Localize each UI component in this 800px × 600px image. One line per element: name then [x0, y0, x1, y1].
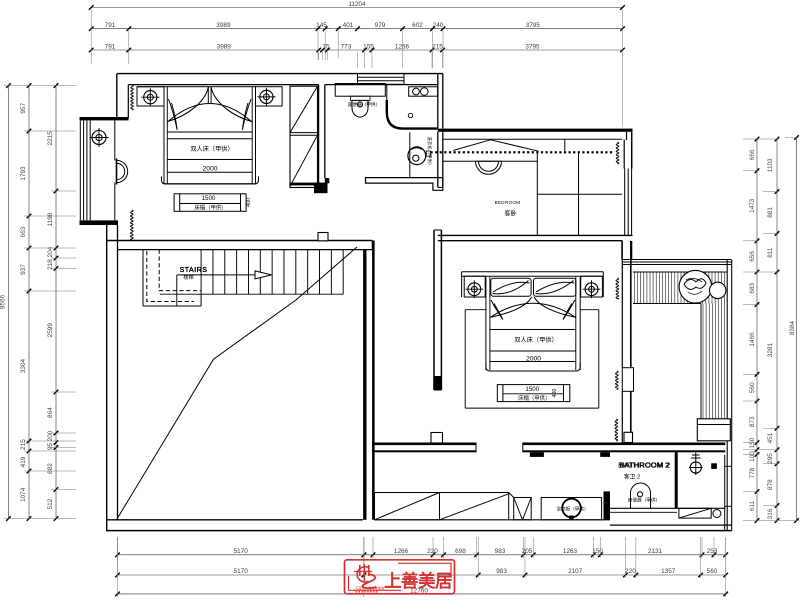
svg-text:3795: 3795 — [526, 22, 541, 29]
svg-text:床榻（甲供）: 床榻（甲供） — [194, 203, 226, 211]
svg-text:1500: 1500 — [525, 386, 539, 393]
svg-text:155: 155 — [363, 43, 374, 50]
svg-text:3281: 3281 — [767, 343, 774, 358]
svg-text:1266: 1266 — [394, 548, 409, 555]
svg-text:1466: 1466 — [749, 332, 756, 347]
svg-text:791: 791 — [105, 43, 116, 50]
svg-text:1793: 1793 — [20, 166, 27, 181]
svg-text:11204: 11204 — [348, 1, 366, 8]
svg-text:3795: 3795 — [525, 43, 540, 50]
svg-text:1198: 1198 — [47, 212, 54, 226]
svg-text:683: 683 — [749, 282, 756, 293]
svg-text:150: 150 — [592, 548, 603, 555]
svg-text:881: 881 — [767, 207, 774, 218]
svg-text:882: 882 — [47, 463, 54, 474]
svg-text:878: 878 — [767, 479, 774, 490]
svg-text:75: 75 — [322, 43, 330, 50]
svg-text:602: 602 — [412, 22, 423, 29]
svg-text:295: 295 — [767, 453, 774, 464]
svg-text:95: 95 — [47, 443, 54, 451]
svg-text:双人床（甲供）: 双人床（甲供） — [190, 145, 233, 153]
svg-text:698: 698 — [455, 548, 466, 555]
svg-text:2215: 2215 — [47, 131, 54, 146]
svg-text:2599: 2599 — [47, 323, 54, 338]
svg-text:215: 215 — [20, 439, 27, 450]
svg-text:401: 401 — [343, 22, 354, 29]
svg-text:8384: 8384 — [789, 320, 796, 335]
svg-text:5170: 5170 — [234, 568, 249, 575]
svg-text:983: 983 — [495, 548, 506, 555]
svg-text:400: 400 — [552, 389, 558, 398]
svg-text:937: 937 — [20, 264, 27, 275]
svg-text:811: 811 — [767, 247, 774, 258]
svg-text:316: 316 — [767, 508, 774, 519]
svg-text:873: 873 — [749, 416, 756, 427]
svg-text:浴室柜（甲供）: 浴室柜（甲供） — [556, 505, 588, 512]
svg-text:611: 611 — [749, 501, 756, 512]
svg-text:石家庄上善美居装饰: 石家庄上善美居装饰 — [356, 586, 385, 591]
svg-text:1473: 1473 — [749, 198, 756, 213]
svg-text:983: 983 — [496, 568, 507, 575]
svg-text:座便器（甲供）: 座便器（甲供） — [348, 101, 380, 108]
svg-text:778: 778 — [749, 467, 756, 478]
svg-text:240: 240 — [433, 22, 444, 29]
svg-text:200: 200 — [47, 430, 54, 441]
svg-text:957: 957 — [20, 103, 27, 114]
svg-text:上善美居: 上善美居 — [384, 571, 452, 591]
svg-text:145: 145 — [316, 22, 327, 29]
svg-text:1103: 1103 — [767, 158, 774, 172]
svg-text:220: 220 — [625, 568, 636, 575]
svg-text:9566: 9566 — [0, 294, 6, 309]
svg-text:双人床（甲供）: 双人床（甲供） — [514, 336, 557, 344]
svg-text:3989: 3989 — [216, 22, 231, 29]
svg-text:5170: 5170 — [234, 548, 249, 555]
svg-text:560: 560 — [707, 568, 718, 575]
svg-text:1263: 1263 — [563, 548, 578, 555]
svg-text:STAIRS: STAIRS — [180, 267, 208, 274]
svg-text:864: 864 — [47, 407, 54, 418]
svg-text:3304: 3304 — [20, 358, 27, 373]
svg-text:1500: 1500 — [202, 195, 216, 202]
svg-text:2107: 2107 — [568, 568, 583, 575]
svg-text:床榻（甲供）: 床榻（甲供） — [518, 394, 550, 402]
svg-text:666: 666 — [749, 149, 756, 160]
svg-text:座便器（甲供）: 座便器（甲供） — [628, 496, 660, 503]
svg-text:979: 979 — [375, 22, 386, 29]
svg-text:791: 791 — [105, 22, 116, 29]
svg-text:656: 656 — [749, 251, 756, 262]
svg-text:客卫 2: 客卫 2 — [624, 473, 640, 481]
svg-text:客卧: 客卧 — [504, 210, 516, 218]
svg-text:220: 220 — [427, 548, 438, 555]
svg-text:400: 400 — [246, 198, 252, 207]
svg-text:1357: 1357 — [661, 568, 676, 575]
svg-text:1074: 1074 — [20, 487, 27, 502]
svg-text:2131: 2131 — [648, 548, 663, 555]
svg-text:BATHROOM 2: BATHROOM 2 — [620, 461, 670, 470]
svg-text:663: 663 — [20, 226, 27, 237]
svg-text:512: 512 — [47, 498, 54, 509]
svg-text:773: 773 — [341, 43, 352, 50]
svg-text:451: 451 — [767, 432, 774, 443]
svg-text:560: 560 — [749, 382, 756, 393]
svg-text:2000: 2000 — [202, 166, 217, 173]
svg-text:2000: 2000 — [526, 356, 541, 363]
svg-text:BEDROOM: BEDROOM — [495, 200, 521, 205]
svg-text:100: 100 — [749, 451, 756, 462]
svg-text:楼梯: 楼梯 — [183, 273, 193, 281]
svg-text:253: 253 — [707, 548, 718, 555]
svg-text:419: 419 — [20, 456, 27, 467]
svg-text:3989: 3989 — [217, 43, 232, 50]
svg-text:215: 215 — [432, 43, 443, 50]
svg-text:1266: 1266 — [395, 43, 410, 50]
